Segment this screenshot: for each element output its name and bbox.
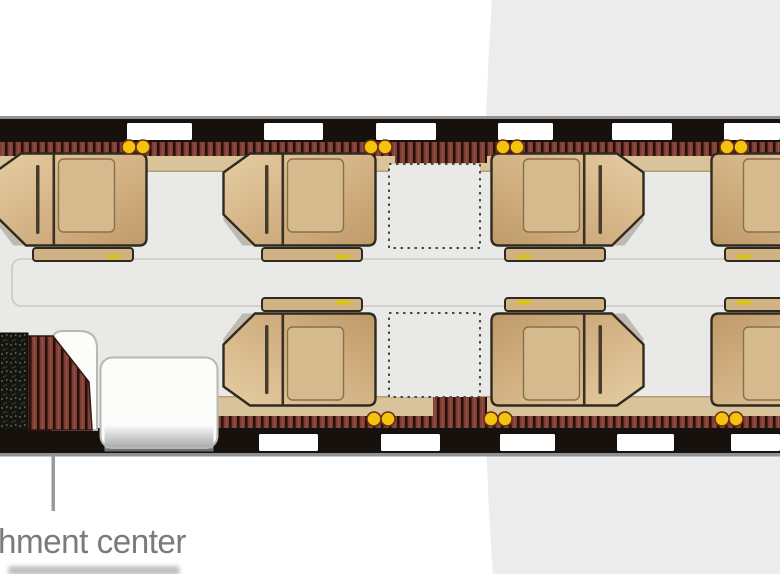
top-slat-cabinet <box>395 140 487 163</box>
seat-bottom-4 <box>712 298 780 406</box>
cabin-window <box>500 434 555 451</box>
seat-cushion <box>744 327 780 400</box>
seat-top-3 <box>492 154 644 262</box>
seat-recline-slot <box>265 325 269 394</box>
cabin-window <box>127 123 192 140</box>
seat-divider-line <box>583 154 586 245</box>
seat-divider-line <box>583 314 586 405</box>
dot <box>484 412 498 426</box>
seat-recline-slot <box>265 165 269 234</box>
dot-overlap <box>512 142 522 152</box>
dot <box>122 140 136 154</box>
seat-top-4 <box>712 154 780 262</box>
seat-pedestal <box>725 248 780 261</box>
cabin-window <box>612 123 672 140</box>
cabin-window <box>259 434 318 451</box>
seat-recline-slot <box>599 325 603 394</box>
dot-overlap <box>383 414 393 424</box>
seat-recline-slot <box>599 165 603 234</box>
dot <box>715 412 729 426</box>
seat-cushion <box>524 327 580 400</box>
label-leader-line <box>52 455 56 511</box>
seat-pedestal-tick <box>737 300 751 305</box>
cabin-window <box>731 434 780 451</box>
hull-line-top <box>0 116 780 119</box>
dot <box>496 140 510 154</box>
dot <box>364 140 378 154</box>
cabin-window <box>381 434 440 451</box>
cabin-window <box>724 123 780 140</box>
cabin-window <box>264 123 323 140</box>
cabin-floor-plan-svg: hment center <box>0 0 780 574</box>
table-dotted-outline <box>389 164 480 248</box>
dot <box>720 140 734 154</box>
seat-pedestal-tick <box>517 255 531 260</box>
dot <box>367 412 381 426</box>
seat-bottom-2 <box>224 298 376 406</box>
table-dotted-outline <box>389 313 480 397</box>
plan-layers <box>0 0 780 574</box>
bottom-slat-cabinet <box>433 397 487 433</box>
seat-top-2 <box>224 154 376 262</box>
dot-overlap <box>500 414 510 424</box>
granite-closet <box>0 333 28 430</box>
dot-overlap <box>138 142 148 152</box>
cabin-floor-plan-figure: hment center <box>0 0 780 574</box>
seat-pedestal-tick <box>336 300 350 305</box>
cabin-window <box>617 434 674 451</box>
cropped-text-smudge <box>8 566 180 574</box>
dot-overlap <box>731 414 741 424</box>
cabin-window <box>498 123 553 140</box>
seat-divider-line <box>282 154 285 245</box>
dot-overlap <box>380 142 390 152</box>
hull-line-bottom <box>0 453 780 457</box>
seat-recline-slot <box>36 165 40 234</box>
seat-pedestal-tick <box>107 255 121 260</box>
seat-bottom-3 <box>492 298 644 406</box>
seat-divider-line <box>53 154 56 245</box>
seat-divider-line <box>282 314 285 405</box>
dot-overlap <box>736 142 746 152</box>
refreshment-center-label: hment center <box>0 523 186 561</box>
cabin-window <box>376 123 436 140</box>
seat-cushion <box>59 159 115 232</box>
seat-cushion <box>288 159 344 232</box>
seat-pedestal-tick <box>336 255 350 260</box>
seat-cushion <box>288 327 344 400</box>
door-sill <box>105 424 214 450</box>
seat-top-1 <box>0 154 147 262</box>
seat-pedestal-tick <box>737 255 751 260</box>
seat-pedestal-tick <box>517 300 531 305</box>
seat-pedestal <box>725 298 780 311</box>
seat-cushion <box>744 159 780 232</box>
seat-cushion <box>524 159 580 232</box>
